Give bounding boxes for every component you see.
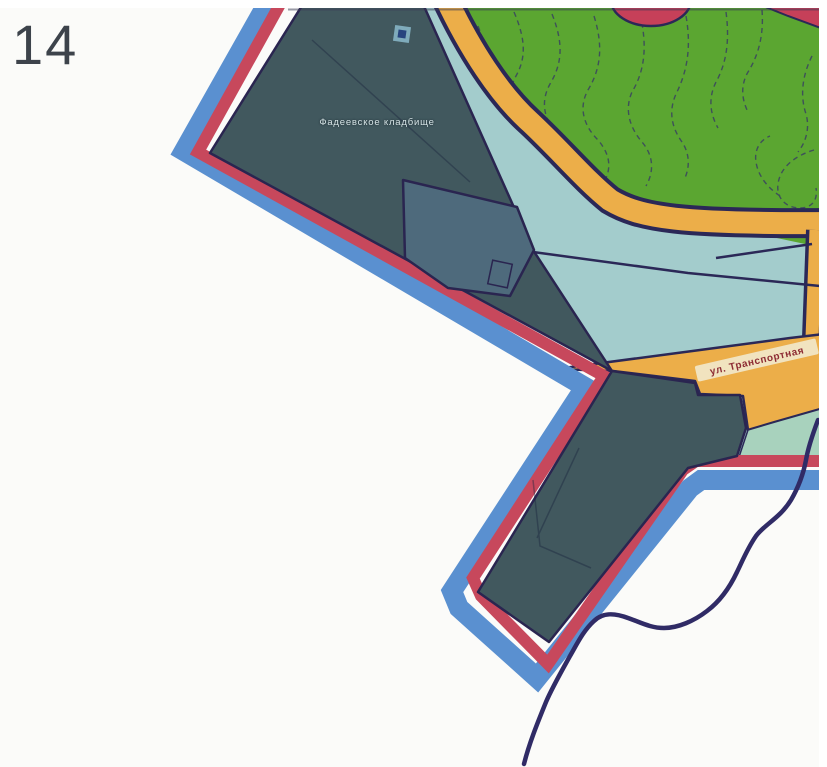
scanned-map-page: ул. Транспортная Фадеевское кладбище 14 (0, 0, 827, 767)
page-number: 14 (12, 13, 78, 76)
road-right (812, 230, 816, 338)
cemetery-label: Фадеевское кладбище (319, 117, 434, 128)
paper-margin-top (0, 0, 827, 8)
paper-margin-right (819, 0, 827, 767)
small-building-marker (397, 29, 406, 38)
map-canvas: ул. Транспортная Фадеевское кладбище 14 (0, 0, 827, 767)
